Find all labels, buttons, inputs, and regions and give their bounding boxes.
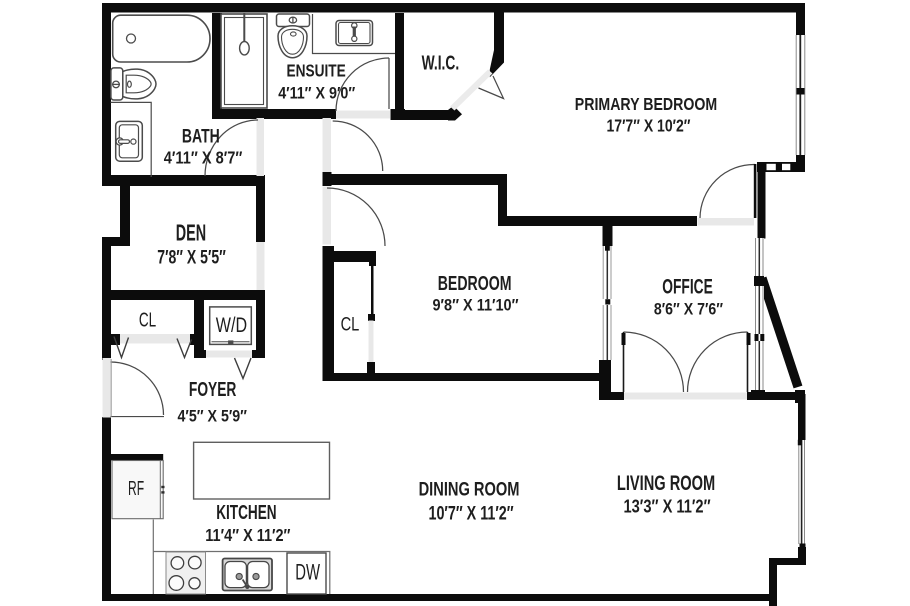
- svg-text:CL: CL: [139, 309, 156, 332]
- svg-text:W/D: W/D: [216, 314, 247, 337]
- svg-text:4′11″ X 9′0″: 4′11″ X 9′0″: [278, 83, 355, 102]
- svg-text:RF: RF: [128, 478, 144, 500]
- svg-text:W.I.C.: W.I.C.: [422, 52, 460, 74]
- svg-text:11′4″ X 11′2″: 11′4″ X 11′2″: [205, 525, 291, 545]
- svg-text:FOYER: FOYER: [189, 379, 237, 401]
- svg-text:DEN: DEN: [176, 220, 206, 246]
- svg-text:PRIMARY BEDROOM: PRIMARY BEDROOM: [575, 94, 717, 114]
- svg-text:9′8″ X 11′10″: 9′8″ X 11′10″: [433, 296, 519, 315]
- svg-text:LIVING ROOM: LIVING ROOM: [617, 472, 715, 495]
- svg-text:DINING ROOM: DINING ROOM: [419, 480, 520, 501]
- svg-text:CL: CL: [341, 314, 360, 336]
- svg-text:17′7″ X 10′2″: 17′7″ X 10′2″: [607, 116, 691, 136]
- svg-text:4′5″ X 5′9″: 4′5″ X 5′9″: [178, 407, 248, 425]
- svg-text:ENSUITE: ENSUITE: [287, 60, 346, 80]
- svg-text:8′6″ X 7′6″: 8′6″ X 7′6″: [654, 300, 723, 319]
- svg-text:7′8″ X 5′5″: 7′8″ X 5′5″: [157, 247, 226, 269]
- svg-text:4′11″ X 8′7″: 4′11″ X 8′7″: [164, 147, 243, 167]
- svg-text:BATH: BATH: [182, 127, 220, 148]
- svg-text:10′7″ X 11′2″: 10′7″ X 11′2″: [429, 504, 514, 525]
- svg-text:13′3″ X 11′2″: 13′3″ X 11′2″: [624, 496, 711, 517]
- svg-text:OFFICE: OFFICE: [662, 276, 713, 299]
- svg-text:BEDROOM: BEDROOM: [438, 273, 512, 295]
- svg-text:DW: DW: [295, 559, 320, 584]
- svg-text:KITCHEN: KITCHEN: [216, 502, 276, 524]
